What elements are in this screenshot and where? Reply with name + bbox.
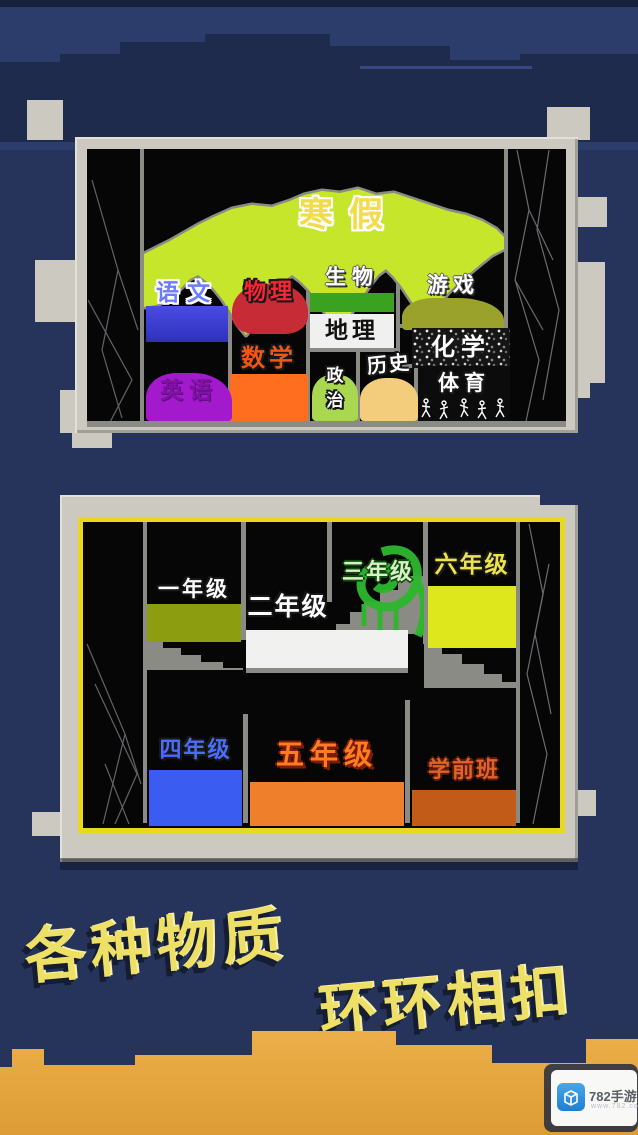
panel-tab (576, 262, 605, 383)
tile-color-block (230, 374, 308, 421)
tile-color-block (149, 770, 242, 826)
panel-tab (576, 790, 596, 816)
grid-divider (516, 522, 520, 823)
panel-tab (576, 197, 607, 227)
tile-shuxue[interactable]: 数学 (230, 344, 308, 421)
tile-label: 历史 (359, 351, 419, 379)
tile-label: 生物 (310, 266, 394, 289)
crack-lines (521, 524, 554, 824)
tile-yingyu[interactable]: 英语 (146, 366, 232, 421)
tile-color-block (402, 298, 504, 330)
pixel-ground (0, 1025, 638, 1135)
panel-tab (547, 107, 590, 140)
crack-lines (509, 150, 566, 426)
tile-label: 英语 (146, 378, 232, 403)
panel-tab (72, 433, 112, 448)
tile-dili[interactable]: 地理 (310, 314, 394, 348)
crack-lines (88, 150, 140, 426)
watermark-logo-icon (557, 1083, 585, 1111)
panel-tab (576, 383, 590, 398)
tile-huaxue[interactable]: 化学 (412, 328, 510, 368)
tile-label: 三年级 (332, 560, 424, 584)
tile-label: 政治 (326, 364, 344, 413)
tile-label: 地理 (310, 318, 394, 343)
watermark[interactable]: 782手游网 www.782.com (551, 1070, 637, 1126)
tile-label: 游戏 (402, 274, 504, 297)
tile-label: 学前班 (412, 758, 516, 782)
panel-tab (35, 260, 77, 322)
tile-label: 二年级 (242, 594, 334, 622)
tile-color-block (147, 604, 241, 642)
winter-break-label: 寒假 (269, 197, 429, 234)
white-platform-block[interactable] (246, 630, 408, 668)
game-screenshot: 寒假 语文 物理 生物 地理 游戏 化学 数学 英语 政治 历史 体育 (0, 0, 638, 1135)
tile-label: 一年级 (147, 578, 241, 601)
caption-line1: 各种物质 (21, 883, 327, 996)
tile-shengwu[interactable]: 生物 (310, 266, 394, 312)
cube-icon (557, 1083, 585, 1111)
tile-color-block (428, 586, 516, 648)
tile-grade-1[interactable]: 一年级 (147, 556, 241, 646)
grid-divider (87, 421, 566, 427)
tile-label: 语文 (146, 280, 228, 305)
tile-label: 四年级 (149, 738, 242, 762)
tile-lishi[interactable]: 历史 (360, 354, 418, 421)
tile-color-block (412, 790, 516, 826)
tile-label: 化学 (412, 335, 510, 361)
tile-zhengzhi[interactable]: 政治 (312, 362, 358, 421)
tile-grade-2[interactable]: 二年级 (246, 556, 330, 636)
panel-frame-notch (540, 495, 578, 505)
tile-label: 五年级 (250, 740, 404, 771)
panel-tab (27, 100, 63, 140)
tile-wuli[interactable]: 物理 (232, 276, 308, 334)
tile-label: 六年级 (428, 552, 516, 577)
tile-youxi[interactable]: 游戏 (402, 272, 504, 330)
tile-tiyu[interactable]: 体育 (418, 366, 510, 421)
watermark-url: www.782.com (591, 1103, 638, 1110)
tile-color-block (360, 378, 418, 421)
tile-grade-6[interactable]: 六年级 (428, 548, 516, 648)
grid-divider (243, 714, 248, 823)
grid-divider (405, 700, 410, 823)
tile-grade-4[interactable]: 四年级 (149, 730, 242, 826)
tile-label: 物理 (232, 280, 308, 304)
panel-shadow (60, 858, 578, 870)
tile-color-block (146, 306, 228, 342)
sky-highlight-line (360, 66, 532, 69)
panel-tab (32, 812, 60, 836)
tile-color-block (250, 782, 404, 826)
sky-top-strip (0, 0, 638, 7)
tile-yuwen[interactable]: 语文 (146, 280, 228, 342)
stick-figures (418, 397, 510, 421)
tile-label: 体育 (418, 372, 510, 395)
crack-lines (85, 524, 143, 824)
tile-grade-5[interactable]: 五年级 (250, 738, 404, 826)
tile-color-block (310, 293, 394, 312)
tile-label: 数学 (230, 346, 308, 372)
tile-preschool[interactable]: 学前班 (412, 752, 516, 826)
